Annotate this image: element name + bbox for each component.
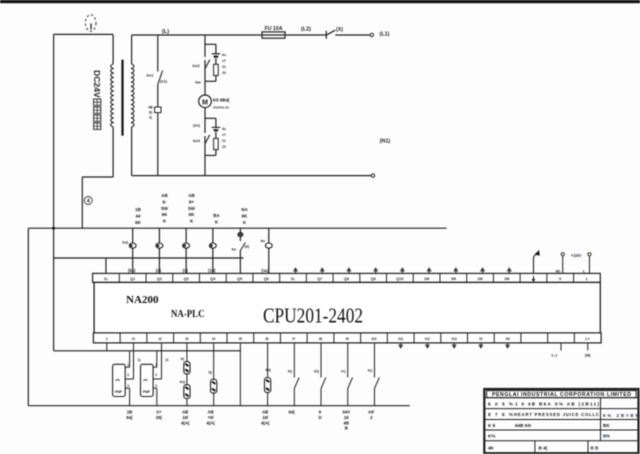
svg-text:04V: 04V <box>342 410 350 415</box>
svg-text:I0): I0) <box>288 370 293 374</box>
svg-text:1M: 1M <box>477 277 482 281</box>
svg-text:A9': A9' <box>368 410 375 415</box>
svg-text:I12: I12 <box>425 337 430 341</box>
svg-text:ka): ka) <box>265 368 271 372</box>
svg-text:ku4: ku4 <box>193 138 201 143</box>
svg-text:PNP: PNP <box>115 390 123 394</box>
svg-text:1B: 1B <box>127 410 133 415</box>
svg-text:I2: I2 <box>159 337 162 341</box>
svg-text:K5 6B4(: K5 6B4( <box>213 98 230 103</box>
svg-text:2L: 2L <box>291 277 296 281</box>
svg-text:6K: 6K <box>162 212 169 217</box>
svg-text:1M: 1M <box>504 277 509 281</box>
svg-text:ku: ku <box>232 248 237 252</box>
svg-text:I1: I1 <box>132 337 135 341</box>
svg-text:K: K <box>243 220 247 225</box>
svg-text:1): 1) <box>137 358 141 362</box>
svg-text:1M: 1M <box>451 277 456 281</box>
svg-text:(M): (M) <box>585 354 591 358</box>
svg-text:I8: I8 <box>319 337 322 341</box>
svg-text:Q4: Q4 <box>210 277 216 281</box>
svg-text:1M: 1M <box>424 277 429 281</box>
svg-text:K: K <box>163 219 167 224</box>
svg-text:I9: I9 <box>346 337 349 341</box>
svg-text:(a): (a) <box>245 245 250 249</box>
svg-text:CPU201-2402: CPU201-2402 <box>263 304 363 328</box>
svg-text:2: 2 <box>127 373 129 377</box>
svg-text:Q1: Q1 <box>130 277 135 281</box>
svg-text:AB: AB <box>262 410 268 415</box>
svg-text:19/: 19/ <box>262 415 269 420</box>
svg-text:1: 1 <box>155 363 157 367</box>
svg-text:8): 8) <box>149 111 153 115</box>
svg-text:64B KK: 64B KK <box>515 423 532 428</box>
svg-text:ku): ku) <box>122 241 128 245</box>
svg-text:4B: 4B <box>148 106 153 110</box>
svg-text:(o): (o) <box>182 268 188 273</box>
svg-text:Ac: Ac <box>222 53 226 57</box>
svg-text:K%: K% <box>488 434 495 439</box>
svg-text:(10(: (10( <box>208 268 216 273</box>
svg-text:1L: 1L <box>104 277 109 281</box>
svg-text:Q9: Q9 <box>371 277 376 281</box>
svg-text:4: 4 <box>87 199 90 205</box>
svg-text:9-: 9- <box>162 199 167 204</box>
svg-text:D: D <box>318 415 321 420</box>
svg-text:BA: BA <box>213 213 220 218</box>
svg-text:4(A(: 4(A( <box>206 420 215 425</box>
svg-text:M: M <box>202 99 208 106</box>
svg-text:4(A(: 4(A( <box>261 420 270 425</box>
svg-text:BN: BN <box>603 434 610 439</box>
svg-text:B B: B B <box>591 446 600 451</box>
svg-text:I13: I13 <box>451 337 456 341</box>
svg-text:B: B <box>345 426 348 431</box>
svg-text:hw: hw <box>195 80 201 85</box>
svg-text:0: 0 <box>559 277 561 281</box>
svg-text:2(: 2( <box>149 116 153 120</box>
svg-text:Iu): Iu) <box>368 369 373 373</box>
svg-text:AB: AB <box>161 193 168 198</box>
svg-text:1B: 1B <box>135 207 142 212</box>
svg-text:Q5: Q5 <box>237 277 242 281</box>
svg-text:I10: I10 <box>371 337 376 341</box>
svg-text:Q7: Q7 <box>317 277 322 281</box>
svg-text:19/: 19/ <box>182 415 189 420</box>
svg-text:43: 43 <box>505 337 509 341</box>
svg-text:AB: AB <box>188 193 195 198</box>
svg-text:FU 10A: FU 10A <box>265 26 283 32</box>
svg-text:1: 1 <box>106 337 108 341</box>
svg-text:Q2: Q2 <box>157 277 162 281</box>
svg-text:(L1): (L1) <box>380 32 390 38</box>
svg-text:K: K <box>190 219 194 224</box>
svg-text:I6: I6 <box>266 337 269 341</box>
svg-text:64(: 64( <box>126 415 133 420</box>
svg-text:2: 2 <box>155 373 157 377</box>
svg-text:26(: 26( <box>156 415 163 420</box>
svg-text:6% 2B#B6: 6% 2B#B6 <box>603 413 639 418</box>
svg-text:6 A 5 %: 6 A 5 % <box>488 401 513 406</box>
svg-text:NA-PLC: NA-PLC <box>171 308 205 320</box>
svg-text:01: 01 <box>222 65 226 69</box>
svg-text:I3: I3 <box>185 337 188 341</box>
svg-text:+9/: +9/ <box>208 415 215 420</box>
svg-text:xT: xT <box>222 133 227 137</box>
svg-text:Ac: Ac <box>222 127 226 131</box>
svg-text:(ka): (ka) <box>128 268 136 273</box>
svg-text:AB: AB <box>207 410 213 415</box>
svg-text:(X): (X) <box>336 27 343 33</box>
svg-text:(ss): (ss) <box>193 123 201 128</box>
svg-text:(N1): (N1) <box>380 139 391 145</box>
svg-text:9=: 9= <box>189 199 195 204</box>
svg-text:64(: 64( <box>288 410 295 415</box>
svg-text:L: L <box>583 269 586 273</box>
svg-text:(x1): (x1) <box>160 79 168 84</box>
svg-text:1: 1 <box>127 363 129 367</box>
svg-text:5W: 5W <box>188 206 196 211</box>
svg-text:K: K <box>215 219 219 224</box>
svg-text:44: 44 <box>135 213 141 218</box>
svg-text:ku): ku) <box>180 380 186 384</box>
svg-text:+24V: +24V <box>571 253 581 258</box>
svg-text:xT: xT <box>222 59 227 63</box>
svg-text:3: 3 <box>155 384 157 388</box>
svg-text:(L2): (L2) <box>301 27 311 33</box>
svg-text:6K: 6K <box>135 220 142 225</box>
svg-text:AB: AB <box>182 410 188 415</box>
svg-text:DC24V: DC24V <box>92 70 102 98</box>
svg-text:B 4(: B 4( <box>539 446 548 451</box>
svg-text:M): M) <box>556 269 561 273</box>
svg-text:xxx/xx.xx: xxx/xx.xx <box>213 106 229 110</box>
svg-text:Q8: Q8 <box>344 277 349 281</box>
svg-text:6K: 6K <box>242 213 249 218</box>
svg-text:1--): 1--) <box>551 354 558 358</box>
svg-text:20: 20 <box>222 145 226 149</box>
svg-text:2: 2 <box>370 415 373 420</box>
svg-text:1 0 4B B6A S% AB (2B11): 1 0 4B B6A S% AB (2B11) <box>515 401 599 406</box>
svg-text:ku1: ku1 <box>147 73 155 78</box>
svg-text:X+: X+ <box>156 410 162 415</box>
svg-text:I3: I3 <box>479 337 482 341</box>
svg-text:Q3: Q3 <box>184 277 189 281</box>
svg-text:8 7 6 %: 8 7 6 % <box>488 412 513 417</box>
svg-text:I7: I7 <box>292 337 295 341</box>
svg-text:4K: 4K <box>488 446 495 451</box>
svg-text:9: 9 <box>319 410 322 415</box>
svg-text:4B: 4B <box>344 420 350 425</box>
svg-text:3: 3 <box>127 384 129 388</box>
svg-text:20: 20 <box>222 71 226 75</box>
svg-text:I5: I5 <box>239 337 242 341</box>
svg-text:BK: BK <box>603 423 610 428</box>
svg-text:(o): (o) <box>156 268 162 273</box>
svg-text:K 6: K 6 <box>488 423 496 428</box>
svg-text:(L): (L) <box>162 29 169 35</box>
svg-text:Q10: Q10 <box>396 277 403 281</box>
svg-text:NA: NA <box>241 207 248 212</box>
svg-text:HEART PRESSED JUICE COLLC: HEART PRESSED JUICE COLLC <box>514 412 599 417</box>
svg-text:5W: 5W <box>161 206 169 211</box>
svg-text:16: 16 <box>344 415 349 420</box>
svg-text:PNP: PNP <box>143 390 151 394</box>
svg-text:b): b) <box>208 371 212 375</box>
svg-text:I11: I11 <box>398 337 403 341</box>
svg-text:b): b) <box>181 357 185 361</box>
svg-text:)1: )1 <box>165 358 168 362</box>
svg-text:(sa): (sa) <box>262 268 270 273</box>
svg-text:I+(: I+( <box>341 370 346 374</box>
svg-text:01: 01 <box>222 139 226 143</box>
svg-text:NA200: NA200 <box>126 294 159 306</box>
svg-text:IO): IO) <box>314 370 320 374</box>
svg-text:6K: 6K <box>189 212 196 217</box>
svg-text:4(A(: 4(A( <box>181 420 190 425</box>
svg-text:L+: L+ <box>585 337 590 341</box>
svg-text:Q6: Q6 <box>264 277 269 281</box>
svg-text:ku: ku <box>261 239 266 243</box>
svg-text:ku3: ku3 <box>193 63 201 68</box>
